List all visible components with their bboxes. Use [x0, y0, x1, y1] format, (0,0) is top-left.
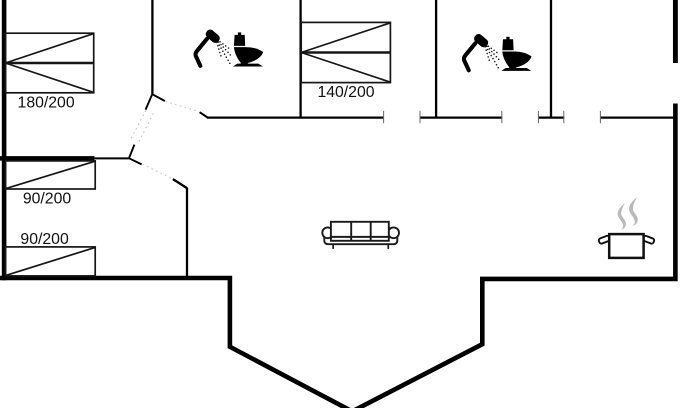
svg-text:90/200: 90/200	[23, 191, 72, 208]
svg-text:140/200: 140/200	[317, 84, 374, 101]
svg-text:90/200: 90/200	[20, 231, 69, 248]
svg-text:180/200: 180/200	[18, 95, 75, 112]
